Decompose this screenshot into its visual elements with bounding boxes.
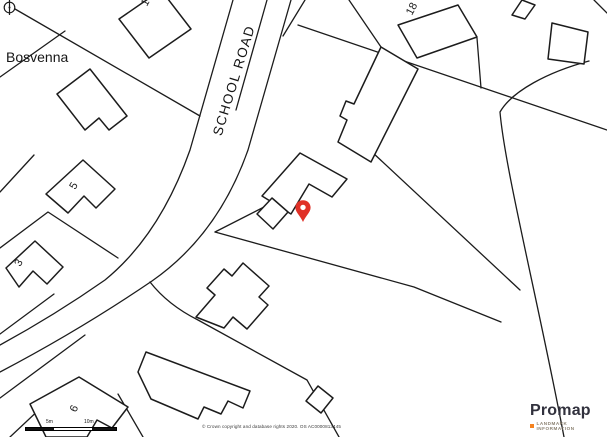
scale-label-5m: 5m [46,419,53,425]
building-diamond-outline [306,386,333,413]
landmark-logo-mark-icon [530,424,534,429]
boundary-top-b [349,0,381,47]
scale-bar-segment [26,428,54,430]
scale-bar-segment [92,428,116,430]
boundary-pin-southwest [215,206,266,232]
building-northeast-square-outline [548,23,588,64]
promap-logo: Promap LANDMARK INFORMATION [530,403,607,431]
building-long-outline [138,352,250,419]
building-bosvenna-outline [57,69,127,130]
map-canvas[interactable]: SCHOOL ROAD Bosvenna 17 18 5 3 9 5m 10m … [0,0,607,437]
north-indicator-icon [4,0,15,15]
scale-bar-segment [54,428,92,430]
boundary-corner-topright [594,0,607,13]
boundary-18-east [477,38,481,88]
boundary-pin-northeast [372,152,520,290]
scale-label-10m: 10m [84,419,94,425]
building-notched-outline [196,263,269,329]
scale-bar [25,427,117,431]
landmark-tagline-row: LANDMARK INFORMATION [530,421,607,431]
landmark-tagline-text: LANDMARK INFORMATION [536,421,607,431]
building-northeast-small-outline [512,0,535,19]
map-linework [0,0,607,437]
property-name-label: Bosvenna [6,49,68,65]
boundary-right-curve [500,61,589,437]
promap-logo-text: Promap [530,403,607,419]
building-main-outline [338,47,418,162]
boundary-left-3 [0,294,54,334]
copyright-text: © Crown copyright and database rights 20… [202,424,341,429]
boundary-left-2 [0,212,118,258]
location-pin-icon[interactable] [295,200,310,222]
boundary-left-1 [0,155,34,192]
building-17-outline [119,0,191,58]
